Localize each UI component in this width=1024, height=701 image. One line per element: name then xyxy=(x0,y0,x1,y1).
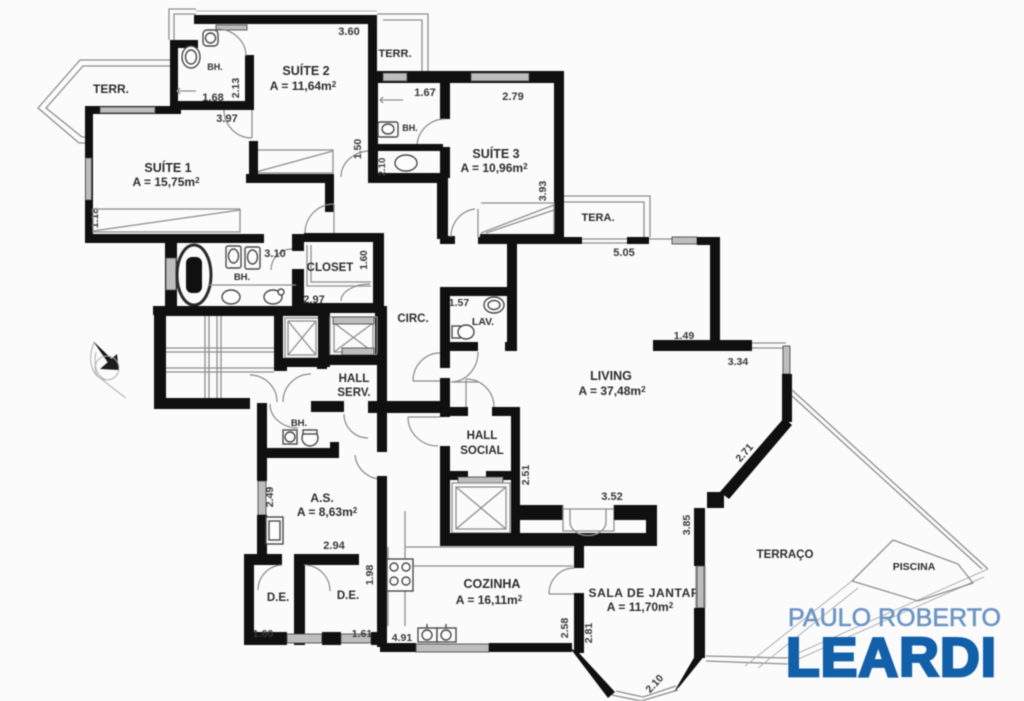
svg-text:SUÍTE 2: SUÍTE 2 xyxy=(282,63,329,78)
svg-text:3.60: 3.60 xyxy=(338,26,359,38)
svg-text:3.34: 3.34 xyxy=(728,356,749,368)
svg-text:3.93: 3.93 xyxy=(537,181,549,202)
svg-text:COZINHA: COZINHA xyxy=(464,577,521,591)
svg-text:1.61: 1.61 xyxy=(352,628,373,640)
svg-text:BH.: BH. xyxy=(207,62,223,72)
svg-text:LAV.: LAV. xyxy=(472,316,494,328)
svg-text:CLOSET: CLOSET xyxy=(307,262,354,274)
svg-text:SOCIAL: SOCIAL xyxy=(460,445,503,457)
svg-text:1.49: 1.49 xyxy=(674,330,695,342)
svg-text:2.94: 2.94 xyxy=(323,540,345,552)
svg-text:HALL: HALL xyxy=(467,430,498,442)
svg-text:5.05: 5.05 xyxy=(613,247,634,259)
svg-text:1.18: 1.18 xyxy=(89,208,101,229)
svg-text:2.79: 2.79 xyxy=(502,91,523,103)
svg-text:TERA.: TERA. xyxy=(582,212,615,224)
svg-text:SUÍTE 1: SUÍTE 1 xyxy=(144,160,191,175)
svg-text:SUÍTE 3: SUÍTE 3 xyxy=(472,146,519,161)
svg-text:A = 8,63m2: A = 8,63m2 xyxy=(297,505,358,519)
svg-text:2.97: 2.97 xyxy=(303,294,324,306)
svg-text:D.E.: D.E. xyxy=(267,592,289,604)
svg-text:D.E.: D.E. xyxy=(337,590,359,602)
svg-text:HALL: HALL xyxy=(339,373,370,385)
svg-text:BH.: BH. xyxy=(402,123,418,133)
svg-text:3.10: 3.10 xyxy=(264,248,285,260)
svg-text:A = 10,96m2: A = 10,96m2 xyxy=(460,161,528,175)
svg-text:3.85: 3.85 xyxy=(681,515,693,536)
svg-text:SERV.: SERV. xyxy=(337,387,370,399)
svg-text:1.60: 1.60 xyxy=(253,628,274,640)
svg-text:1.68: 1.68 xyxy=(202,92,223,104)
svg-text:1.98: 1.98 xyxy=(364,565,376,586)
svg-text:A = 11,64m2: A = 11,64m2 xyxy=(270,79,337,93)
svg-text:4.91: 4.91 xyxy=(392,632,413,644)
svg-text:TERR.: TERR. xyxy=(93,82,129,96)
svg-text:TERR.: TERR. xyxy=(379,48,412,60)
svg-text:LEARDI: LEARDI xyxy=(786,626,996,688)
svg-text:CIRC.: CIRC. xyxy=(397,313,428,325)
svg-text:2.13: 2.13 xyxy=(230,78,242,99)
svg-text:SALA DE JANTAR: SALA DE JANTAR xyxy=(589,586,700,600)
svg-text:2.10: 2.10 xyxy=(377,158,388,177)
svg-text:1.67: 1.67 xyxy=(414,87,435,99)
svg-text:BH.: BH. xyxy=(234,272,250,283)
svg-text:2.58: 2.58 xyxy=(559,618,571,639)
svg-text:2.51: 2.51 xyxy=(520,465,532,486)
svg-text:A = 37,48m2: A = 37,48m2 xyxy=(578,384,646,398)
svg-text:LIVING: LIVING xyxy=(590,369,632,383)
svg-text:A.S.: A.S. xyxy=(310,491,333,505)
svg-text:A = 11,70m2: A = 11,70m2 xyxy=(607,600,674,614)
svg-text:2.49: 2.49 xyxy=(264,487,276,508)
svg-text:A = 16,11m2: A = 16,11m2 xyxy=(456,593,523,607)
svg-text:1.57: 1.57 xyxy=(449,297,470,309)
svg-text:3.52: 3.52 xyxy=(601,491,622,503)
svg-text:TERRAÇO: TERRAÇO xyxy=(757,549,814,561)
svg-text:BH.: BH. xyxy=(291,418,307,429)
svg-text:PISCINA: PISCINA xyxy=(893,561,936,573)
svg-text:A = 15,75m2: A = 15,75m2 xyxy=(132,175,200,189)
svg-text:2.81: 2.81 xyxy=(583,623,595,644)
svg-text:1.60: 1.60 xyxy=(359,250,370,270)
